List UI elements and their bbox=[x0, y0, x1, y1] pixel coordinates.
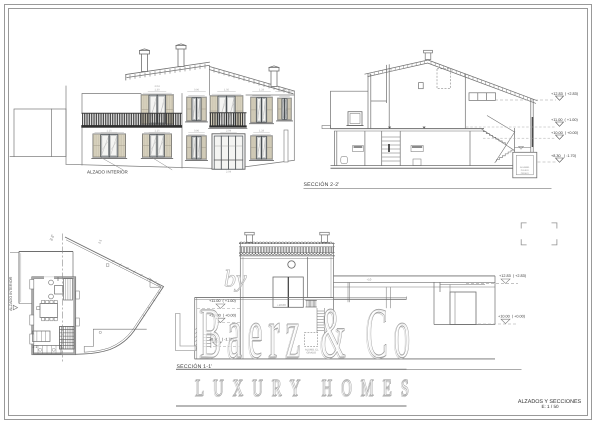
svg-text:1.28: 1.28 bbox=[259, 129, 265, 132]
svg-text:+12.83 ( +2.83): +12.83 ( +2.83) bbox=[551, 92, 579, 96]
svg-text:1.50: 1.50 bbox=[224, 89, 230, 92]
svg-text:1-1': 1-1' bbox=[32, 345, 38, 349]
svg-text:E: 1 / 50: E: 1 / 50 bbox=[541, 404, 559, 409]
svg-text:1.28: 1.28 bbox=[259, 89, 265, 92]
svg-text:+10: +10 bbox=[367, 277, 372, 281]
svg-text:ALUMBR.: ALUMBR. bbox=[520, 166, 530, 169]
svg-text:2.04: 2.04 bbox=[226, 129, 232, 132]
svg-text:0.96: 0.96 bbox=[194, 89, 200, 92]
svg-text:ALZADO INTERIOR: ALZADO INTERIOR bbox=[9, 276, 13, 311]
svg-text:1.15: 1.15 bbox=[154, 129, 160, 132]
svg-text:+10.00 ( +0.00): +10.00 ( +0.00) bbox=[551, 131, 579, 135]
svg-text:ALZADO INTERIOR: ALZADO INTERIOR bbox=[87, 170, 129, 175]
svg-text:GRADO: GRADO bbox=[521, 172, 529, 175]
svg-text:LUXURY HOMES: LUXURY HOMES bbox=[196, 376, 419, 402]
svg-text:0.96: 0.96 bbox=[194, 129, 200, 132]
svg-text:Baerz & Co: Baerz & Co bbox=[200, 293, 416, 373]
svg-text:2.04: 2.04 bbox=[226, 171, 232, 174]
svg-text:PULIDO: PULIDO bbox=[521, 169, 529, 172]
svg-text:1.15: 1.15 bbox=[106, 129, 112, 132]
svg-text:by: by bbox=[224, 267, 247, 293]
svg-text:1.30: 1.30 bbox=[154, 89, 160, 92]
svg-text:2.04: 2.04 bbox=[154, 85, 160, 88]
svg-text:+10.00 ( +0.00): +10.00 ( +0.00) bbox=[498, 314, 526, 318]
svg-text:+12.83 ( +2.83): +12.83 ( +2.83) bbox=[499, 274, 527, 278]
svg-text:+11.00 ( +1.00): +11.00 ( +1.00) bbox=[551, 118, 578, 122]
svg-text:0.90: 0.90 bbox=[282, 89, 288, 92]
svg-text:SECCIÓN 2-2': SECCIÓN 2-2' bbox=[304, 181, 340, 188]
svg-text:+8.30 ( -1.70): +8.30 ( -1.70) bbox=[551, 154, 577, 158]
